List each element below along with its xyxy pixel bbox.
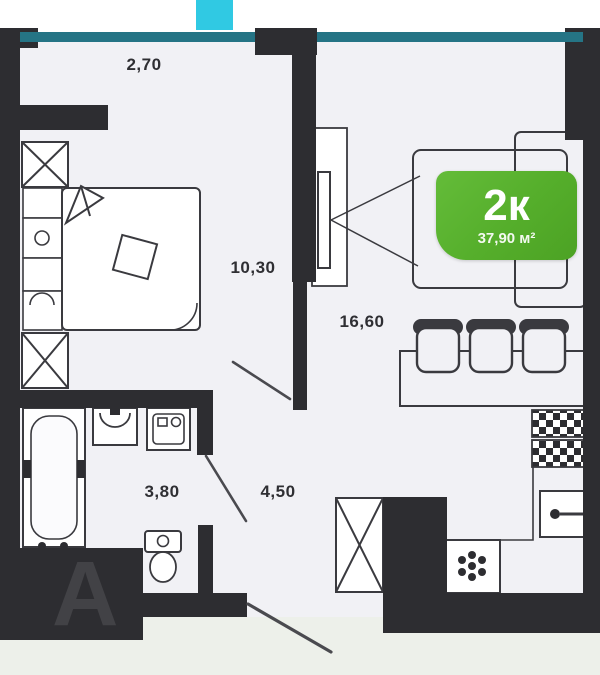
bar-stool-icon xyxy=(467,320,515,372)
washing-machine-icon xyxy=(147,408,190,450)
kitchen-sink-icon xyxy=(540,491,584,537)
wardrobe-icon xyxy=(22,142,68,187)
wardrobe-icon xyxy=(336,498,383,592)
dimension-label-bathroom: 3,80 xyxy=(130,482,194,502)
wardrobe-icon xyxy=(22,333,68,388)
total-area-label: 37,90 м² xyxy=(478,230,536,247)
window-marker xyxy=(196,0,233,30)
rooms-count-label: 2к xyxy=(483,184,530,228)
floor-plan: 2,70 10,30 16,60 3,80 4,50 2к 37,90 м² А xyxy=(0,0,600,675)
dimension-label-hallway: 4,50 xyxy=(248,482,308,502)
bathtub-icon xyxy=(23,408,85,550)
area-badge: 2к 37,90 м² xyxy=(436,171,577,260)
nightstand-icon xyxy=(23,188,62,330)
dimension-label-bedroom: 10,30 xyxy=(215,258,291,278)
bed-icon xyxy=(62,186,200,330)
dimension-label-living-kitchen: 16,60 xyxy=(322,312,402,332)
bar-stool-icon xyxy=(414,320,462,372)
washbasin-icon xyxy=(93,408,137,445)
bar-stool-icon xyxy=(520,320,568,372)
watermark: А xyxy=(52,548,118,640)
refrigerator-icon xyxy=(445,540,500,593)
pillow-icon xyxy=(113,235,157,279)
wall-pier xyxy=(255,28,317,55)
dimension-label-top: 2,70 xyxy=(112,55,176,75)
